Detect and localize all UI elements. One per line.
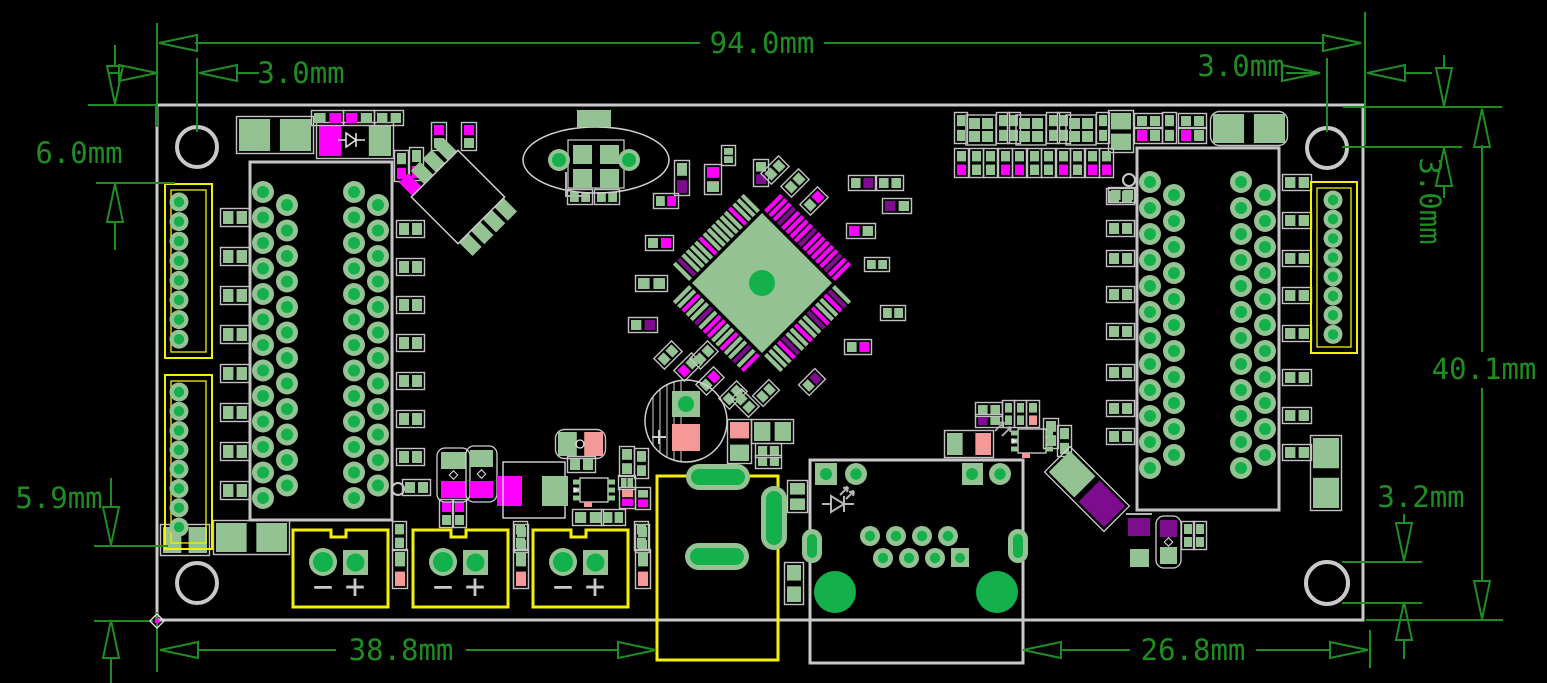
power-connector-3: −+: [533, 530, 628, 607]
smd-component: [1311, 436, 1342, 511]
pin-pad: [174, 314, 184, 324]
smd-component: [1057, 149, 1071, 178]
header-pad: [372, 480, 384, 492]
smd-pad: [1194, 116, 1204, 126]
cap-pad: [678, 396, 694, 412]
pin-pad: [174, 406, 184, 416]
mounting-hole: [1306, 562, 1348, 604]
smd-pad: [1122, 431, 1132, 442]
smd-pad: [637, 451, 646, 462]
dimension-label-d388: 38.8mm: [349, 633, 454, 667]
pin-pad: [174, 275, 184, 285]
smd-component: [636, 550, 651, 589]
smd-pad: [667, 196, 676, 206]
ic-pin: [584, 502, 592, 507]
header-pad: [372, 276, 384, 288]
pin-pad: [174, 216, 184, 226]
pcb-layout-screenshot: PCB layout dimension drawing 94.0mm x 40…: [0, 0, 1547, 683]
led-triangle: [831, 496, 844, 512]
smd-component: [1179, 114, 1207, 129]
smd-component: [705, 165, 722, 195]
smd-pad: [464, 138, 474, 148]
minus-label: −: [313, 567, 333, 607]
smd-component: [620, 488, 636, 509]
capacitor: [437, 448, 470, 502]
ic-pin: [573, 496, 580, 501]
smd-pad: [863, 178, 873, 188]
pin-pad: [174, 522, 184, 532]
pcb-layout-drawing: −+−+−+94.0mm3.0mm3.0mm6.0mm5.9mm40.1mm3.…: [0, 0, 1547, 683]
cap-pad: [441, 452, 466, 469]
header-pad: [257, 365, 269, 377]
smd-pad: [391, 113, 401, 123]
smd-pad: [237, 328, 247, 341]
dimension-arrow: [1436, 68, 1452, 106]
smd-pad: [879, 178, 889, 188]
header-pad: [372, 225, 384, 237]
header-pad: [1144, 462, 1156, 474]
pad: [1130, 549, 1149, 567]
ic-pin: [1046, 447, 1053, 452]
smd-component: [845, 340, 872, 355]
crystal-pad: [600, 145, 619, 164]
smd-component: [397, 373, 425, 390]
array-pad: [1082, 131, 1093, 142]
smd-component: [1283, 213, 1312, 229]
smd-pad: [237, 484, 247, 497]
header-pad: [1144, 332, 1156, 344]
dimension-arrow: [1323, 35, 1361, 51]
header-pad: [348, 186, 360, 198]
smd-pad: [1005, 415, 1012, 425]
electrolytic-capacitor: [645, 380, 727, 462]
smd-pad: [319, 125, 341, 156]
array-pad: [1032, 118, 1043, 129]
header-pad: [1168, 319, 1180, 331]
polarity-mark: [449, 471, 457, 479]
smd-pad: [975, 433, 991, 455]
led-arrow: [846, 491, 854, 499]
ic-body: [580, 478, 608, 502]
smd-pad: [412, 375, 422, 387]
smd-pad: [237, 445, 247, 458]
smd-pad: [754, 422, 770, 441]
crystal-oscillator: [523, 127, 669, 193]
header-pad: [1168, 241, 1180, 253]
ic-pin: [1022, 453, 1030, 458]
smd-pad: [730, 422, 749, 438]
smd-pad: [223, 445, 233, 458]
array-pad: [1032, 131, 1043, 142]
smd-pad: [442, 502, 451, 512]
smd-pad: [1285, 410, 1295, 421]
smd-pad: [1060, 130, 1068, 141]
smd-pad: [790, 483, 805, 495]
pad: [930, 553, 940, 563]
smd-component: [440, 500, 454, 528]
smd-component: [1179, 128, 1207, 144]
smd-pad: [999, 130, 1007, 141]
header-pad: [1144, 202, 1156, 214]
smd-component: [1015, 401, 1027, 428]
header-pad: [348, 288, 360, 300]
dimension-arrow: [107, 184, 123, 222]
smd-pad: [1049, 130, 1057, 141]
smd-component: [654, 341, 682, 369]
smd-pad: [724, 148, 733, 155]
smd-pad: [1059, 165, 1068, 175]
pin-pad: [1328, 195, 1338, 205]
dimension-label-d401: 40.1mm: [1432, 352, 1537, 386]
dimension-label-d3rv: 3.0mm: [1413, 157, 1447, 244]
smd-pad: [1123, 190, 1133, 200]
smd-pad: [867, 260, 876, 269]
smd-pad: [637, 538, 646, 548]
header-pad: [1259, 293, 1271, 305]
dimension-label-d32: 3.2mm: [1377, 480, 1464, 514]
smd-pad: [1285, 177, 1295, 188]
smd-pad: [1165, 130, 1174, 141]
array-pad: [1019, 118, 1030, 129]
header-pad: [1259, 241, 1271, 253]
smd-component: [629, 318, 658, 333]
smd-component: [221, 287, 250, 305]
header-pad: [257, 467, 269, 479]
header-pad: [1259, 267, 1271, 279]
smd-component: [1283, 445, 1312, 461]
via: [1123, 174, 1135, 186]
smd-component: [1211, 112, 1288, 146]
dimension-arrow: [119, 65, 157, 81]
smd-pad: [1109, 253, 1119, 264]
smd-component: [849, 176, 876, 191]
smd-pad: [1299, 447, 1309, 458]
header-pad: [281, 250, 293, 262]
smd-pad: [223, 367, 233, 380]
smd-component: [1042, 149, 1056, 178]
smd-pad: [237, 406, 247, 419]
header-pad: [1259, 397, 1271, 409]
smd-pad: [377, 113, 387, 123]
header-pad: [372, 199, 384, 211]
cap-pad: [672, 424, 700, 451]
smd-pad: [1299, 290, 1309, 301]
pin-pad: [1328, 329, 1338, 339]
dimension-arrow: [1367, 65, 1405, 81]
smd-component: [696, 367, 724, 395]
smd-pad: [280, 119, 311, 151]
smd-pad: [770, 458, 779, 466]
smd-pad: [790, 498, 805, 510]
smd-pad: [978, 417, 988, 425]
power-connector-1: −+: [293, 530, 388, 607]
array-pad: [1019, 131, 1030, 142]
crystal-pad: [600, 169, 619, 188]
smd-pad: [677, 163, 687, 176]
cap-pad: [470, 450, 493, 467]
pad: [1013, 534, 1023, 558]
pad: [1128, 518, 1150, 536]
smd-pad: [990, 405, 1000, 414]
header-pad: [372, 454, 384, 466]
ic-pin: [1046, 431, 1053, 436]
plus-label: +: [465, 567, 485, 607]
header-pad: [257, 263, 269, 275]
smd-component: [881, 306, 906, 321]
smd-pad: [1015, 151, 1024, 161]
smd-pad: [399, 337, 409, 349]
smd-pad: [1099, 130, 1107, 141]
header-pad: [348, 263, 360, 275]
left-pin-header: [250, 162, 392, 520]
smd-pad: [223, 289, 233, 302]
header-pad: [1144, 280, 1156, 292]
smd-pad: [412, 299, 422, 311]
smd-component: [620, 447, 635, 477]
smd-pad: [399, 451, 409, 463]
smd-component: [1013, 149, 1027, 178]
left-connector-top: [165, 184, 212, 358]
smd-pad: [604, 512, 612, 523]
header-pad: [1168, 267, 1180, 279]
smd-pad: [730, 445, 749, 461]
ic-body: [1018, 429, 1046, 453]
header-pad: [1235, 280, 1247, 292]
pin-pad: [1328, 310, 1338, 320]
led-symbol: [822, 487, 854, 512]
smd-pad: [412, 413, 422, 425]
smd-pad: [223, 406, 233, 419]
smd-pad: [570, 459, 580, 470]
smd-pad: [638, 278, 650, 289]
smd-pad: [645, 320, 655, 330]
smd-pad: [395, 524, 404, 534]
header-pad: [257, 237, 269, 249]
smd-pad: [677, 180, 687, 193]
smd-pad: [1044, 151, 1053, 161]
smd-pad: [1313, 438, 1339, 468]
header-pad: [372, 301, 384, 313]
header-pad: [1235, 410, 1247, 422]
smd-pad: [412, 150, 421, 162]
header-pad: [1259, 449, 1271, 461]
header-pad: [1235, 384, 1247, 396]
pin-pad: [174, 425, 184, 435]
inductor-pad: [497, 476, 522, 506]
power-connector-2: −+: [413, 530, 508, 607]
smd-pad: [397, 153, 406, 164]
smd-pad: [455, 502, 464, 512]
pin-pad: [174, 503, 184, 513]
smd-pad: [621, 478, 627, 487]
smd-pad: [1122, 289, 1132, 300]
smd-component: [1283, 288, 1312, 304]
smd-pad: [648, 238, 658, 248]
smd-pad: [216, 523, 247, 552]
header-pad: [348, 492, 360, 504]
smd-component: [984, 149, 998, 178]
smd-pad: [1299, 253, 1309, 264]
smd-pad: [1150, 116, 1160, 126]
smd-pad: [1010, 130, 1018, 141]
smd-component: [221, 326, 250, 344]
smd-pad: [1299, 177, 1309, 188]
smd-pad: [516, 524, 525, 534]
smd-pad: [1102, 165, 1111, 175]
smd-component: [221, 248, 250, 266]
smd-pad: [1109, 431, 1119, 442]
smd-pad: [627, 478, 633, 487]
crystal-pad: [573, 145, 592, 164]
smd-outline: [799, 369, 826, 396]
smd-pad: [583, 459, 593, 470]
smd-component: [636, 276, 668, 292]
header-pad: [372, 327, 384, 339]
smd-pad: [558, 432, 577, 456]
dimension-arrow: [103, 620, 119, 658]
smd-component: [1109, 111, 1134, 153]
smd-pad: [859, 342, 869, 352]
origin-marker: [155, 619, 160, 624]
smd-pad: [223, 484, 233, 497]
smd-component: [1107, 365, 1135, 381]
smd-pad: [1196, 524, 1204, 534]
smd-component: [1283, 251, 1312, 267]
dimension-arrow: [1396, 523, 1412, 561]
smd-pad: [986, 151, 995, 161]
dimension-label-d3l: 3.0mm: [257, 56, 344, 90]
smd-pad: [418, 482, 428, 493]
smd-component: [556, 430, 606, 459]
smd-pad: [1254, 114, 1285, 143]
smd-pad: [787, 565, 801, 581]
header-pad: [1144, 358, 1156, 370]
smd-outline: [654, 341, 682, 369]
polarity-mark: [477, 470, 485, 478]
mounting-hole: [177, 563, 217, 603]
smd-component: [865, 258, 890, 272]
inductor-pad: [542, 476, 568, 506]
smd-pad: [395, 538, 404, 548]
pad: [917, 531, 927, 541]
smd-pad: [986, 165, 995, 175]
smd-pad: [787, 586, 801, 602]
smd-pad: [314, 113, 326, 123]
smd-pad: [1102, 151, 1111, 161]
smd-pad: [464, 125, 474, 135]
header-pad: [281, 454, 293, 466]
header-pad: [257, 416, 269, 428]
smd-pad: [1046, 421, 1056, 432]
pad: [807, 534, 817, 558]
smd-pad: [758, 458, 767, 466]
smd-component: [722, 146, 736, 166]
pad: [891, 531, 901, 541]
smd-component: [1107, 251, 1135, 267]
smd-pad: [775, 422, 791, 441]
smd-pad: [990, 417, 1000, 425]
header-pad: [1235, 254, 1247, 266]
smd-pad: [885, 201, 895, 211]
smd-pad: [622, 499, 633, 506]
header-pad: [281, 327, 293, 339]
smd-component: [955, 149, 969, 178]
smd-pad: [256, 523, 287, 552]
smd-pad: [223, 328, 233, 341]
smd-pad: [1184, 537, 1192, 547]
ic-pin: [608, 488, 615, 493]
smd-component: [221, 365, 250, 383]
header-pad: [1168, 423, 1180, 435]
smd-component: [1097, 113, 1110, 144]
smd-pad: [770, 446, 779, 455]
smd-component: [1283, 175, 1312, 191]
smd-pad: [637, 524, 646, 534]
smd-pad: [656, 196, 665, 206]
crystal-outline: [523, 127, 669, 193]
header-pad: [1259, 371, 1271, 383]
header-pad: [1235, 436, 1247, 448]
ic-pin: [1046, 439, 1053, 444]
array-pad: [1069, 131, 1080, 142]
array-pad: [969, 118, 980, 129]
smd-pad: [412, 337, 422, 349]
dimension-label-width: 94.0mm: [710, 26, 815, 60]
smd-pad: [972, 151, 981, 161]
smd-pad: [346, 113, 357, 123]
header-pad: [372, 403, 384, 415]
smd-pad: [516, 552, 526, 566]
smd-pad: [237, 211, 247, 224]
smd-pad: [399, 299, 409, 311]
smd-component: [453, 500, 467, 528]
smd-component: [646, 236, 674, 251]
smd-component: [781, 169, 809, 197]
pad: [904, 553, 914, 563]
header-pad: [1144, 306, 1156, 318]
smd-pad: [412, 451, 422, 463]
smd-pad: [455, 515, 464, 525]
smd-component: [635, 449, 649, 479]
smd-component: [970, 149, 984, 178]
pin-pad: [174, 295, 184, 305]
pin-pad: [174, 197, 184, 207]
smd-component: [800, 187, 828, 215]
smd-pad: [847, 342, 857, 352]
smd-component: [636, 488, 651, 510]
diode-symbol: [338, 133, 365, 147]
pin-pad: [1328, 233, 1338, 243]
smd-pad: [399, 223, 409, 235]
smd-pad: [957, 130, 965, 141]
pin-pad: [174, 387, 184, 397]
smd-pad: [1109, 367, 1119, 378]
smd-pad: [1109, 326, 1119, 337]
smd-component: [514, 550, 529, 589]
smd-pad: [399, 375, 409, 387]
smd-pad: [849, 226, 859, 236]
pad: [766, 491, 782, 545]
header-pad: [1144, 176, 1156, 188]
pad: [966, 468, 978, 480]
sot-ic: [1011, 429, 1053, 458]
sot-ic: [573, 478, 615, 507]
header-pad: [1235, 176, 1247, 188]
smd-component: [602, 510, 626, 526]
smd-pad: [1196, 537, 1204, 547]
smd-pad: [1030, 165, 1039, 175]
smd-pad: [638, 499, 648, 507]
